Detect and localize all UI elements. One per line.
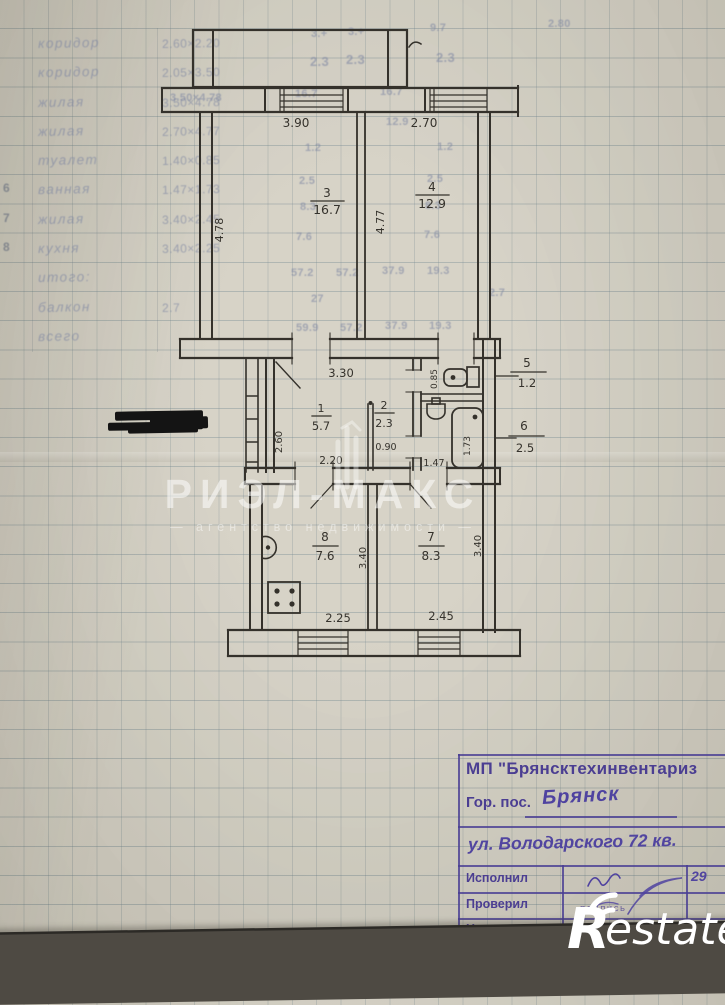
annotation-leader <box>495 376 518 438</box>
dim-height-260: 2.60 <box>274 431 285 453</box>
dim-width-390: 3.90 <box>283 116 310 130</box>
room-3-number: 3 <box>323 186 331 200</box>
dim-width-270: 2.70 <box>411 116 438 130</box>
balcony <box>193 30 421 87</box>
scanned-floorplan-page: { "ghost_table": { "rows": [ {"num":"","… <box>0 0 725 955</box>
room-2-number: 2 <box>381 399 388 412</box>
restate-logo-estate: estate <box>605 904 725 955</box>
dim-width-147: 1.47 <box>423 458 444 469</box>
dim-height-173: 1.73 <box>463 436 473 456</box>
room-4-area: 12.9 <box>418 196 446 211</box>
room-8-area: 7.6 <box>315 549 334 563</box>
window <box>298 630 460 656</box>
room-6-area: 2.5 <box>516 441 534 455</box>
dim-height-478: 4.78 <box>213 218 226 243</box>
room-5-area: 1.2 <box>518 376 536 390</box>
restate-logo-r: R <box>567 897 610 955</box>
entry-door-leaf <box>276 362 300 388</box>
stairwell-hatch <box>246 358 258 472</box>
kitchen-sink-icon <box>262 537 276 559</box>
room-7-area: 8.3 <box>421 549 440 563</box>
restate-logo: R estate <box>545 884 725 955</box>
dim-width-225: 2.25 <box>325 611 351 625</box>
dim-width-245: 2.45 <box>428 609 454 623</box>
door-leaf <box>311 484 431 508</box>
room-2-area: 2.3 <box>375 417 393 430</box>
dim-width-330: 3.30 <box>328 366 354 380</box>
dim-height-085: 0.85 <box>430 369 440 389</box>
window <box>280 88 487 112</box>
room-5-number: 5 <box>523 356 531 370</box>
room-3-area: 16.7 <box>313 202 341 217</box>
toilet-icon <box>444 367 479 387</box>
room-1-area: 5.7 <box>312 419 330 433</box>
lower-unit-walls <box>228 484 520 656</box>
dim-width-090: 0.90 <box>375 442 396 453</box>
room-1-number: 1 <box>318 402 325 415</box>
dim-height-340-kitchen: 3.40 <box>358 547 369 569</box>
room-6-number: 6 <box>520 419 528 433</box>
room-4-number: 4 <box>428 180 436 194</box>
dim-height-477: 4.77 <box>374 210 387 235</box>
floor-plan-svg: 3.90 2.70 4.78 4.77 3 16.7 4 12.9 3.30 2… <box>0 0 725 955</box>
room-8-number: 8 <box>321 530 329 544</box>
dim-height-340-room7: 3.40 <box>473 535 484 557</box>
room-7-number: 7 <box>427 530 435 544</box>
stove-icon <box>268 582 300 613</box>
middle-unit-walls <box>245 339 518 632</box>
